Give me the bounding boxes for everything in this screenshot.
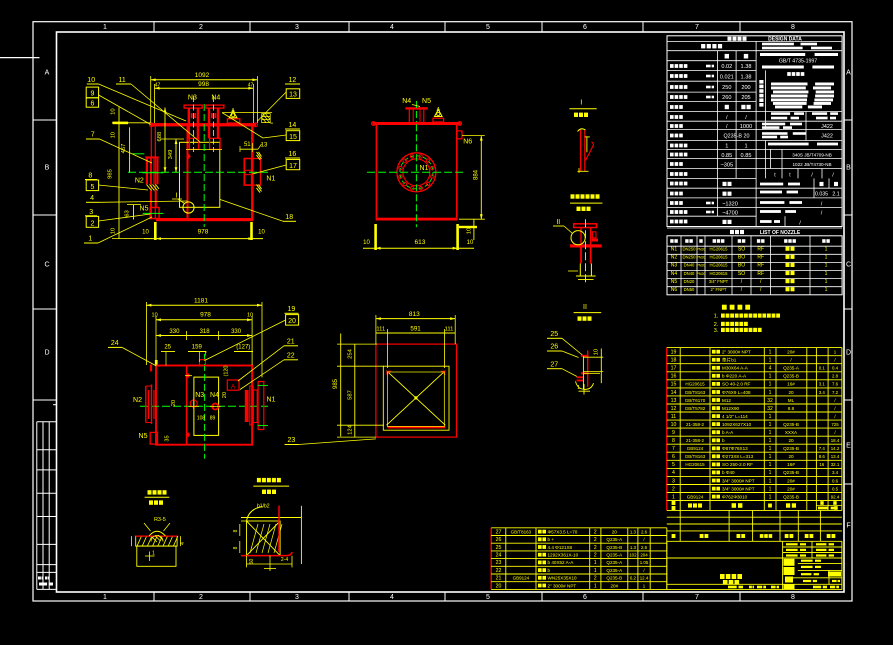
svg-text:10: 10	[466, 228, 472, 234]
svg-text:R3-5: R3-5	[154, 517, 166, 523]
svg-text:2: 2	[90, 220, 94, 227]
svg-text:10: 10	[152, 313, 158, 319]
svg-text:20: 20	[496, 583, 502, 589]
svg-text:884: 884	[474, 169, 480, 180]
svg-text:1: 1	[744, 144, 747, 150]
svg-text:1.3: 1.3	[630, 545, 637, 550]
svg-text:8: 8	[88, 173, 92, 180]
svg-text:1: 1	[769, 430, 772, 436]
svg-text:978: 978	[200, 312, 211, 319]
svg-text:SO 250-2.0 RF: SO 250-2.0 RF	[722, 462, 753, 467]
svg-text:1000: 1000	[740, 124, 752, 130]
svg-text:1: 1	[769, 478, 772, 484]
svg-text:Q235-A: Q235-A	[606, 537, 623, 542]
svg-text:10: 10	[467, 240, 474, 246]
svg-text:22: 22	[496, 568, 502, 574]
svg-text:RF: RF	[757, 247, 764, 253]
svg-text:Q235-B: Q235-B	[783, 422, 799, 427]
svg-text:1: 1	[769, 422, 772, 428]
svg-text:N6: N6	[463, 138, 472, 145]
svg-text:1: 1	[88, 236, 92, 243]
svg-text:0.85: 0.85	[721, 153, 732, 159]
svg-text:1: 1	[103, 24, 107, 31]
svg-text:10: 10	[87, 77, 95, 84]
svg-text:2.6: 2.6	[641, 545, 648, 550]
svg-text:~4700: ~4700	[722, 210, 738, 216]
svg-text:b Φ40: b Φ40	[722, 470, 735, 475]
svg-text:330: 330	[231, 329, 242, 335]
svg-text:1: 1	[825, 247, 828, 253]
svg-text:108: 108	[197, 416, 206, 422]
svg-text:3: 3	[89, 209, 93, 216]
svg-text:18: 18	[285, 214, 293, 221]
svg-text:8.6: 8.6	[819, 454, 826, 459]
svg-text:813: 813	[409, 311, 420, 318]
svg-text:27: 27	[550, 361, 558, 368]
svg-text:20: 20	[788, 390, 794, 395]
svg-text:XXXA: XXXA	[785, 430, 798, 435]
svg-text:HG20615: HG20615	[685, 382, 705, 387]
svg-text:32.1: 32.1	[831, 462, 840, 467]
svg-text:20: 20	[788, 438, 794, 443]
svg-text:6: 6	[583, 24, 587, 31]
svg-text:2: 2	[199, 24, 203, 31]
svg-text:N5: N5	[140, 206, 149, 213]
svg-text:1: 1	[769, 390, 772, 396]
svg-text:13: 13	[261, 143, 268, 149]
svg-text:24: 24	[111, 340, 119, 347]
svg-text:1: 1	[769, 494, 772, 500]
svg-text:II: II	[583, 304, 587, 311]
svg-text:M30X64 A-A: M30X64 A-A	[722, 366, 749, 371]
svg-text:22: 22	[287, 353, 295, 360]
svg-text:GB9124: GB9124	[513, 576, 530, 581]
svg-text:12: 12	[671, 406, 677, 412]
svg-text:19: 19	[288, 306, 296, 313]
svg-text:4: 4	[90, 195, 94, 202]
svg-text:7: 7	[672, 446, 675, 452]
svg-text:20: 20	[171, 400, 177, 406]
svg-text:I: I	[580, 98, 582, 107]
svg-text:Φ273X8 L=313: Φ273X8 L=313	[722, 454, 754, 459]
svg-text:N3: N3	[195, 392, 204, 399]
svg-text:1022 JB/T4730-NB: 1022 JB/T4730-NB	[792, 162, 831, 167]
svg-text:0.5: 0.5	[832, 486, 839, 491]
svg-text:3.4: 3.4	[819, 390, 826, 395]
svg-text:N2: N2	[671, 255, 678, 261]
svg-text:F: F	[846, 523, 850, 530]
svg-text:PN20: PN20	[697, 272, 706, 276]
svg-text:998: 998	[198, 81, 209, 88]
svg-text:1: 1	[594, 560, 597, 566]
svg-text:10: 10	[111, 228, 117, 234]
svg-text:254: 254	[347, 348, 353, 358]
svg-text:21-358-2: 21-358-2	[686, 422, 705, 427]
svg-text:5: 5	[486, 24, 490, 31]
svg-text:I: I	[176, 193, 178, 200]
svg-text:3/4" 3000# NPT: 3/4" 3000# NPT	[722, 486, 755, 491]
svg-text:23: 23	[496, 560, 502, 566]
svg-text:N1: N1	[420, 165, 429, 172]
svg-text:3.4: 3.4	[832, 470, 839, 475]
svg-text:20#: 20#	[610, 583, 618, 588]
svg-text:b: b	[722, 438, 725, 443]
svg-text:4 1/2" L=114: 4 1/2" L=114	[722, 414, 748, 419]
svg-text:14: 14	[289, 122, 297, 129]
svg-text:GB/T 4735-1997: GB/T 4735-1997	[779, 59, 817, 65]
svg-text:1: 1	[769, 350, 772, 356]
svg-text:2: 2	[594, 553, 597, 559]
svg-text:BO: BO	[738, 263, 745, 269]
svg-text:9: 9	[672, 430, 675, 436]
svg-text:~305: ~305	[720, 162, 733, 168]
svg-text:PN20: PN20	[697, 256, 706, 260]
svg-text:10: 10	[111, 108, 117, 114]
svg-text:2" 3000# NPT: 2" 3000# NPT	[722, 350, 751, 355]
svg-text:RF: RF	[757, 255, 764, 261]
svg-text:DN40: DN40	[684, 271, 695, 276]
svg-text:1: 1	[825, 287, 828, 293]
svg-text:DN50: DN50	[684, 287, 695, 292]
svg-text:9: 9	[90, 91, 94, 98]
svg-text:8: 8	[233, 529, 239, 532]
svg-text:b A-A: b A-A	[722, 430, 734, 435]
svg-text:Φ76X9 L=408: Φ76X9 L=408	[722, 390, 751, 395]
svg-text:2.6: 2.6	[641, 529, 648, 534]
svg-text:204: 204	[640, 553, 648, 558]
svg-text:N4: N4	[210, 392, 219, 399]
svg-text:1092: 1092	[195, 72, 210, 79]
svg-text:A: A	[846, 70, 851, 77]
svg-text:B: B	[45, 165, 50, 172]
svg-text:GB/T6170: GB/T6170	[685, 398, 706, 403]
svg-text:2: 2	[594, 545, 597, 551]
svg-text:4: 4	[390, 24, 394, 31]
svg-text:8: 8	[672, 438, 675, 444]
svg-text:2: 2	[199, 594, 203, 601]
svg-text:Q235-B: Q235-B	[783, 374, 799, 379]
svg-text:Q235-B: Q235-B	[783, 446, 799, 451]
svg-text:587: 587	[347, 390, 353, 400]
svg-text:1: 1	[103, 594, 107, 601]
svg-text:1.: 1.	[714, 314, 719, 320]
svg-text:10: 10	[671, 422, 677, 428]
svg-text:12.4: 12.4	[640, 576, 649, 581]
svg-text:26: 26	[550, 344, 558, 351]
svg-text:24: 24	[496, 553, 502, 559]
svg-text:985: 985	[108, 169, 114, 179]
svg-text:N1: N1	[671, 247, 678, 253]
svg-text:Φ87Φ76X13: Φ87Φ76X13	[722, 446, 748, 451]
svg-text:DN40: DN40	[684, 263, 695, 268]
svg-text:ML: ML	[788, 398, 795, 403]
svg-text:Q235-B: Q235-B	[606, 545, 622, 550]
svg-text:13.4: 13.4	[831, 454, 840, 459]
svg-text:1: 1	[769, 358, 772, 364]
svg-text:1.38: 1.38	[741, 75, 752, 81]
svg-text:Q235-A: Q235-A	[606, 568, 623, 573]
svg-text:4: 4	[180, 542, 186, 545]
svg-text:111: 111	[445, 327, 454, 333]
svg-text:250: 250	[722, 85, 731, 91]
svg-text:0.1: 0.1	[819, 366, 826, 371]
svg-text:GB/T8163: GB/T8163	[511, 529, 532, 534]
svg-text:HG20615: HG20615	[710, 247, 729, 252]
svg-text:21: 21	[496, 576, 502, 582]
svg-text:2: 2	[672, 486, 675, 492]
svg-text:N1: N1	[266, 176, 275, 183]
svg-text:1: 1	[825, 271, 828, 277]
svg-text:b Φ220 A-A: b Φ220 A-A	[722, 374, 747, 379]
svg-text:HG20615: HG20615	[710, 263, 729, 268]
svg-text:7.4: 7.4	[819, 446, 826, 451]
svg-text:205: 205	[741, 95, 750, 101]
svg-text:4.4 Φ121X8: 4.4 Φ121X8	[548, 545, 573, 550]
svg-text:1292X361X-10: 1292X361X-10	[548, 553, 579, 558]
svg-text:1: 1	[769, 446, 772, 452]
svg-text:7: 7	[695, 24, 699, 31]
svg-text:RF: RF	[757, 271, 764, 277]
svg-text:PN20: PN20	[697, 264, 706, 268]
svg-text:7: 7	[91, 132, 95, 139]
svg-text:GB9124: GB9124	[687, 446, 704, 451]
svg-text:~1320: ~1320	[722, 201, 738, 207]
svg-text:2" 3000# NPT: 2" 3000# NPT	[548, 583, 577, 588]
svg-text:8: 8	[791, 24, 795, 31]
svg-text:1.3: 1.3	[630, 529, 637, 534]
svg-text:6: 6	[672, 454, 675, 460]
svg-text:M12X90: M12X90	[722, 406, 740, 411]
svg-text:3: 3	[672, 478, 675, 484]
svg-text:1.05: 1.05	[640, 560, 649, 565]
svg-text:349: 349	[168, 150, 174, 160]
svg-text:20: 20	[788, 454, 794, 459]
svg-text:1: 1	[769, 470, 772, 476]
svg-text:14.2: 14.2	[831, 446, 840, 451]
svg-text:C: C	[44, 262, 49, 269]
svg-text:2-4: 2-4	[281, 557, 288, 563]
svg-text:16: 16	[819, 462, 824, 467]
svg-text:A: A	[231, 383, 236, 390]
svg-text:5: 5	[90, 184, 94, 191]
svg-text:6: 6	[583, 594, 587, 601]
svg-text:N2: N2	[133, 397, 142, 404]
svg-text:1: 1	[725, 144, 728, 150]
svg-text:1: 1	[825, 279, 828, 285]
svg-text:SO: SO	[738, 247, 745, 253]
svg-text:15: 15	[671, 382, 677, 388]
svg-text:Q235-B: Q235-B	[606, 576, 622, 581]
svg-text:PN20: PN20	[697, 248, 706, 252]
svg-text:D: D	[846, 350, 851, 357]
svg-text:102: 102	[629, 553, 637, 558]
svg-text:BO: BO	[738, 255, 745, 261]
svg-text:N4: N4	[671, 271, 678, 277]
svg-text:6: 6	[90, 101, 94, 108]
svg-text:50: 50	[249, 559, 255, 565]
svg-text:35: 35	[165, 435, 171, 441]
svg-text:DN250: DN250	[682, 255, 696, 260]
svg-text:N3: N3	[671, 263, 678, 269]
svg-text:M12: M12	[722, 398, 731, 403]
svg-text:1181: 1181	[194, 297, 208, 304]
svg-text:N3: N3	[188, 95, 197, 102]
svg-text:340S JB/T4709-NB: 340S JB/T4709-NB	[792, 153, 832, 158]
svg-text:Q235-A: Q235-A	[606, 553, 623, 558]
svg-text:20#: 20#	[787, 486, 795, 491]
svg-text:16: 16	[289, 151, 297, 158]
svg-text:HG20615: HG20615	[685, 462, 705, 467]
svg-text:b +: b +	[548, 537, 555, 542]
svg-text:1.38: 1.38	[741, 64, 752, 70]
svg-text:b: b	[548, 568, 551, 573]
svg-text:13: 13	[671, 398, 677, 404]
svg-text:978: 978	[198, 229, 209, 236]
svg-text:1092X627X10: 1092X627X10	[722, 422, 752, 427]
svg-text:1: 1	[769, 374, 772, 380]
svg-text:10: 10	[363, 240, 370, 246]
svg-text:457: 457	[121, 144, 127, 154]
svg-text:GB/T8163: GB/T8163	[685, 390, 706, 395]
svg-text:II: II	[556, 219, 560, 226]
svg-text:N4: N4	[402, 98, 411, 105]
svg-text:B: B	[846, 165, 851, 172]
svg-text:32: 32	[767, 406, 773, 412]
svg-text:985: 985	[333, 378, 339, 389]
svg-text:N5: N5	[422, 98, 431, 105]
svg-text:16#: 16#	[787, 382, 795, 387]
svg-text:17: 17	[289, 163, 297, 170]
svg-text:DESIGN DATA: DESIGN DATA	[768, 37, 802, 43]
svg-text:1: 1	[594, 568, 597, 574]
svg-text:Q235-A: Q235-A	[783, 366, 800, 371]
svg-text:1: 1	[825, 263, 828, 269]
svg-text:11: 11	[119, 77, 126, 84]
svg-text:318: 318	[200, 329, 211, 335]
svg-text:Φ57X3.5 L=70: Φ57X3.5 L=70	[548, 529, 578, 534]
svg-text:Q235-B 20: Q235-B 20	[723, 134, 749, 140]
svg-text:89: 89	[210, 416, 216, 422]
svg-text:3/4" FNPT: 3/4" FNPT	[709, 279, 729, 284]
svg-text:2" FNPT: 2" FNPT	[711, 287, 727, 292]
svg-text:47: 47	[155, 83, 161, 89]
svg-text:E: E	[846, 443, 851, 450]
svg-text:1: 1	[769, 382, 772, 388]
svg-text:GB/T8163: GB/T8163	[685, 454, 706, 459]
svg-text:WN25X35X10: WN25X35X10	[548, 576, 578, 581]
svg-text:N4: N4	[211, 95, 220, 102]
svg-text:16#: 16#	[787, 462, 795, 467]
svg-text:20: 20	[612, 529, 618, 534]
svg-text:A: A	[45, 70, 50, 77]
svg-text:1: 1	[594, 583, 597, 589]
svg-text:21: 21	[287, 339, 295, 346]
svg-text:2.1: 2.1	[832, 192, 839, 198]
svg-text:260: 260	[722, 95, 731, 101]
svg-text:725: 725	[831, 422, 839, 427]
svg-text:SO: SO	[738, 271, 745, 277]
svg-text:DN250: DN250	[682, 247, 696, 252]
svg-text:HG20615: HG20615	[710, 271, 729, 276]
svg-text:(127): (127)	[236, 345, 250, 351]
svg-text:GB/T5782: GB/T5782	[685, 406, 706, 411]
svg-text:6.2: 6.2	[630, 576, 637, 581]
svg-text:32: 32	[767, 398, 773, 404]
svg-text:10: 10	[258, 230, 265, 236]
svg-text:3.1: 3.1	[819, 382, 826, 387]
svg-text:25: 25	[496, 545, 502, 551]
svg-text:N6: N6	[671, 287, 678, 293]
svg-text:SO 40-2.0 RF: SO 40-2.0 RF	[722, 382, 751, 387]
svg-text:8: 8	[791, 594, 795, 601]
svg-text:20: 20	[288, 318, 296, 325]
svg-text:N2: N2	[135, 178, 144, 185]
svg-text:8.8: 8.8	[788, 406, 795, 411]
svg-text:3: 3	[295, 594, 299, 601]
svg-text:垫片b1: 垫片b1	[722, 357, 737, 364]
svg-text:20: 20	[222, 392, 228, 398]
svg-text:18: 18	[671, 358, 677, 364]
svg-text:J422: J422	[821, 124, 833, 130]
svg-text:25: 25	[164, 345, 171, 351]
svg-text:1: 1	[769, 438, 772, 444]
svg-text:13: 13	[289, 92, 297, 99]
svg-text:613: 613	[414, 239, 425, 246]
svg-text:25: 25	[550, 331, 558, 338]
svg-text:51: 51	[244, 142, 251, 148]
svg-text:14: 14	[671, 390, 677, 396]
svg-text:19: 19	[671, 350, 677, 356]
svg-text:1: 1	[672, 494, 675, 500]
svg-text:J422: J422	[821, 134, 833, 140]
svg-text:N5: N5	[139, 433, 148, 440]
svg-text:HG20615: HG20615	[710, 255, 729, 260]
svg-text:0.85: 0.85	[741, 153, 752, 159]
svg-text:20#: 20#	[787, 350, 795, 355]
svg-text:RF: RF	[757, 263, 764, 269]
svg-text:2.8: 2.8	[832, 374, 839, 379]
svg-text:Q235-B: Q235-B	[783, 470, 799, 475]
svg-text:200: 200	[741, 85, 750, 91]
svg-text:8: 8	[233, 546, 239, 549]
svg-text:10: 10	[111, 132, 117, 138]
svg-text:20#: 20#	[787, 478, 795, 483]
svg-text:27: 27	[496, 529, 502, 535]
svg-text:DN20: DN20	[684, 279, 695, 284]
svg-text:1: 1	[769, 462, 772, 468]
svg-text:0.02: 0.02	[721, 64, 732, 70]
svg-text:591: 591	[410, 326, 421, 333]
svg-text:3/4" 3000# NPT: 3/4" 3000# NPT	[722, 478, 755, 483]
svg-text:0.035: 0.035	[815, 192, 828, 198]
svg-text:Φ762Φ3010: Φ762Φ3010	[722, 494, 748, 499]
svg-text:C: C	[846, 262, 851, 269]
svg-text:Q235-B: Q235-B	[783, 494, 799, 499]
svg-text:0.6: 0.6	[832, 478, 839, 483]
svg-text:330: 330	[169, 329, 180, 335]
svg-text:0.4: 0.4	[832, 366, 839, 371]
svg-text:47: 47	[248, 83, 254, 89]
svg-text:18.4: 18.4	[831, 438, 840, 443]
svg-text:92.4: 92.4	[831, 494, 840, 499]
svg-text:b1/b2: b1/b2	[257, 504, 270, 510]
svg-text:1: 1	[825, 255, 828, 261]
svg-text:5: 5	[672, 462, 675, 468]
svg-text:16: 16	[671, 374, 677, 380]
svg-text:N1: N1	[267, 397, 276, 404]
svg-text:124: 124	[347, 424, 353, 434]
svg-text:688: 688	[157, 132, 163, 142]
